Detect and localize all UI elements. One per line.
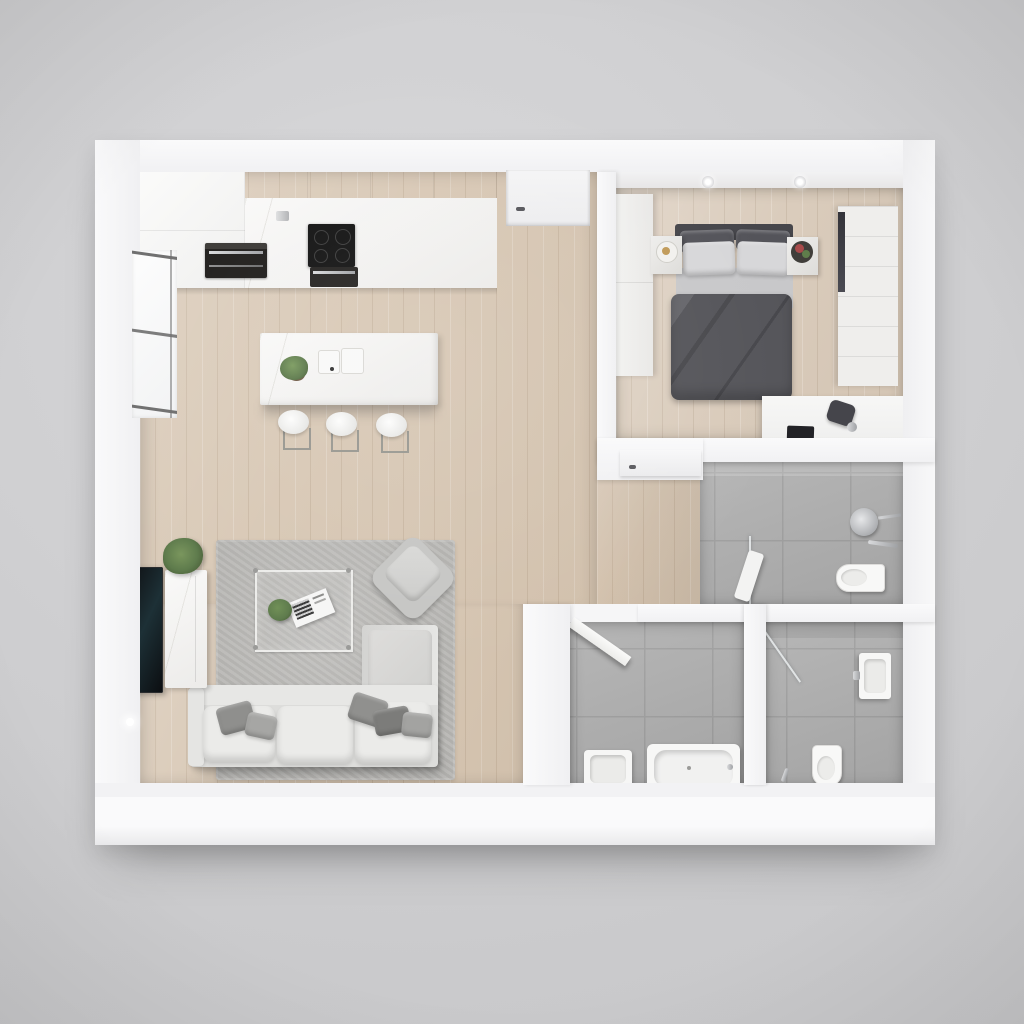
island-faucet [330,367,334,371]
basin-bowl [864,659,886,693]
sofa-armrest-left [188,688,204,766]
ceiling-spotlight [794,176,806,188]
bedroom-ceiling-band [616,172,903,188]
flowers-green [802,250,810,258]
burner [314,249,328,263]
bed-pillow [736,241,789,276]
dresser-mirror-strip [838,212,845,292]
wall-oven [205,243,267,278]
console-plant [163,538,203,574]
island-plant [280,356,308,380]
coffee-table-leg [346,568,351,573]
book-title-line [314,598,326,604]
console-shelf-seam [195,576,196,682]
rain-shower-head [850,508,878,536]
bathtub-faucet [727,764,733,770]
wall-bath-west-block [523,604,570,785]
table-plant [268,599,292,621]
wardrobe-seam [612,282,653,283]
bedroom-dresser [838,206,898,386]
island-sink-right [341,348,364,374]
under-counter-oven [310,267,358,287]
oven-handle [209,251,263,254]
stool-seat [278,410,309,434]
wall-west [95,140,140,845]
ceiling-spotlight [702,176,714,188]
oven-handle [313,271,355,274]
wall-bath-north [638,604,935,622]
burner [335,248,350,263]
apartment-shell [95,140,935,845]
coffee-table-leg [253,645,258,650]
basin-faucet [853,671,860,680]
wall-hung-basin [859,653,891,699]
bathtub-basin [654,750,733,787]
washbasin-bowl [590,755,626,783]
toilet-shower-room [836,564,885,592]
toilet-seat [817,756,835,780]
throw-pillow [401,711,433,738]
induction-cooktop [308,224,355,267]
entry-door-handle [516,207,525,211]
cabinet-floor-shadow [138,288,497,295]
cooker-hood [276,211,289,221]
coffee-table-leg [346,645,351,650]
stool-seat [326,412,357,436]
bed-duvet [671,294,792,400]
toilet-bathroom [812,745,842,787]
bedroom-wardrobe-left [612,194,653,376]
hallway-shading [597,480,700,604]
window [132,250,177,418]
book-cover-print [291,598,314,620]
media-console [165,570,207,688]
entry-door [506,170,590,226]
bedroom-door-handle [629,465,636,469]
wall-light [126,718,134,726]
burner [314,230,329,245]
sofa-seat-cushion [277,706,353,764]
floorplan-scene [0,0,1024,1024]
coffee-table-leg [253,568,258,573]
bedroom-door [620,450,701,476]
cabinet-seam [138,230,245,231]
bed-pillow [682,241,735,276]
burner [335,229,351,245]
tray-candle [662,247,670,255]
stool-seat [376,413,407,437]
wall-north [95,140,935,172]
wall-east [903,140,935,845]
wall-bedroom-west [597,172,616,460]
toilet-seat [841,569,867,586]
wall-south [95,783,935,845]
window-frame-side [170,250,172,418]
desk-lamp [847,422,857,432]
kitchen-upper-cabinets [245,172,497,198]
oven-trim [209,265,263,267]
shower-room-wall-tile-band [700,462,903,476]
island-sink-left [318,350,340,374]
wall-bath-divider [744,604,766,785]
bathtub-drain [687,766,691,770]
bathroom-shower-wall-tile-band [766,622,903,638]
